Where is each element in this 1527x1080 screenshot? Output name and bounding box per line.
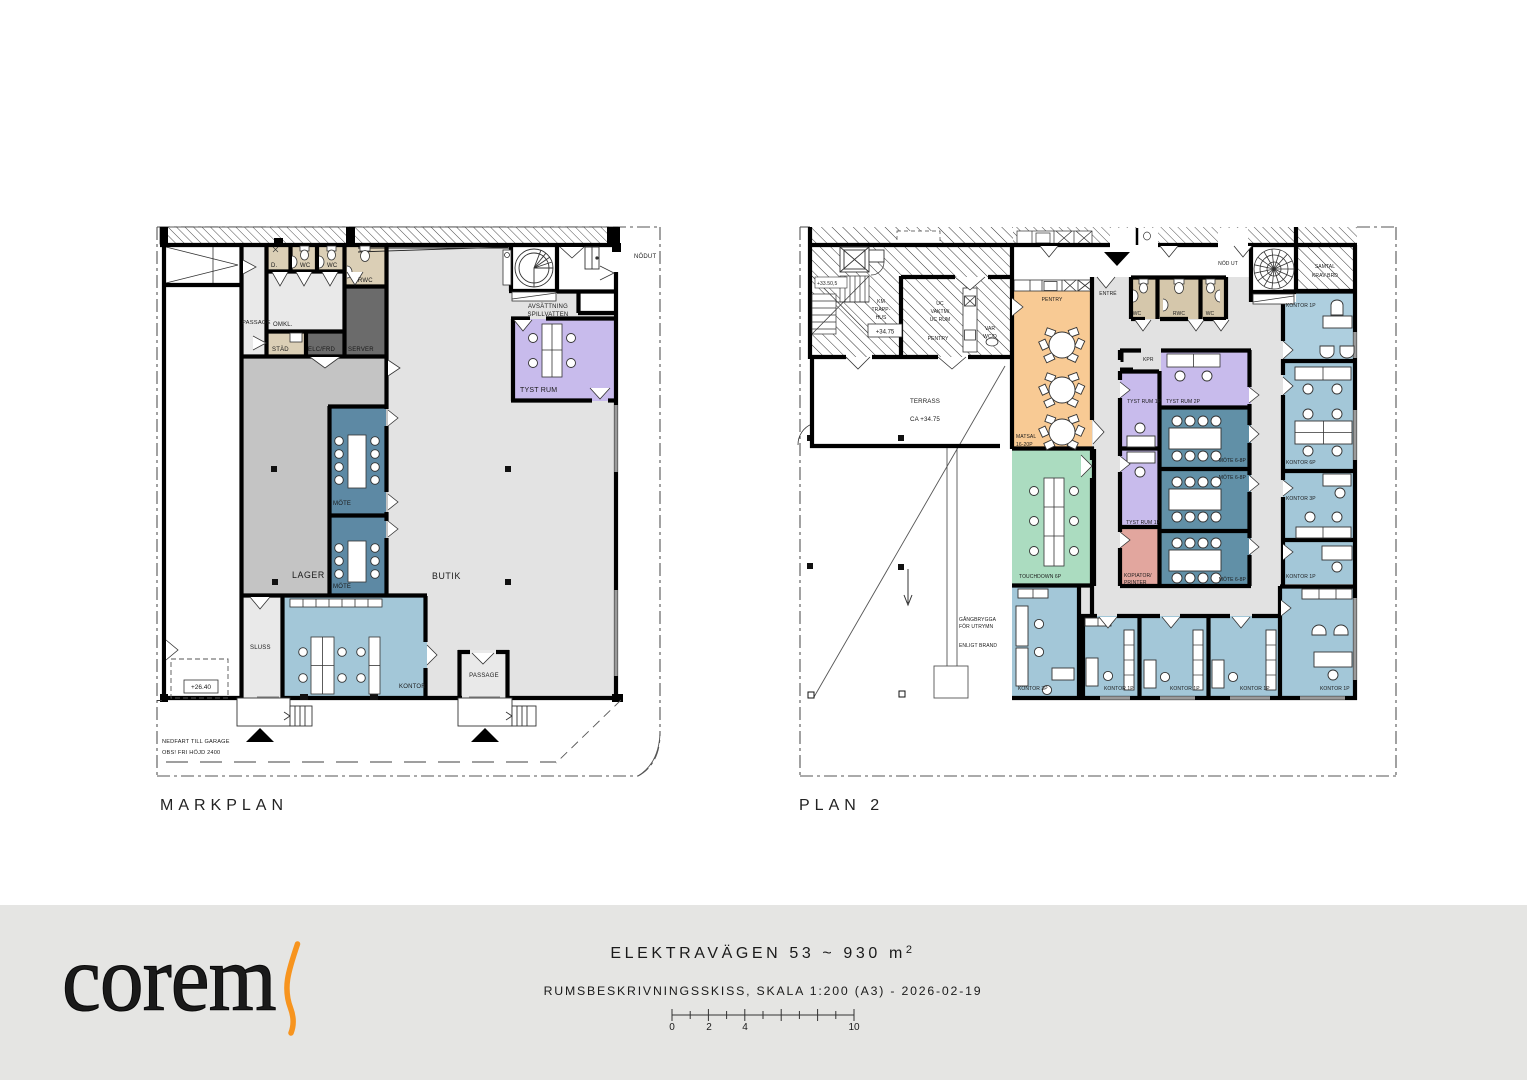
svg-text:KPR: KPR: [1143, 357, 1154, 363]
svg-text:4: 4: [742, 1022, 748, 1033]
svg-text:TOUCHDOWN 6P: TOUCHDOWN 6P: [1019, 574, 1062, 580]
svg-text:RWC: RWC: [358, 278, 373, 284]
svg-text:TYST RUM 1P: TYST RUM 1P: [1127, 399, 1162, 405]
svg-text:BUTIK: BUTIK: [432, 571, 461, 581]
svg-text:TYST RUM: TYST RUM: [520, 387, 557, 394]
svg-text:ENTRÉ: ENTRÉ: [1099, 290, 1117, 297]
svg-text:+33.50,5: +33.50,5: [817, 281, 838, 287]
svg-text:GÅNGBRYGGA: GÅNGBRYGGA: [959, 616, 997, 623]
svg-text:SAMTAL: SAMTAL: [1315, 264, 1335, 270]
svg-text:D.: D.: [271, 263, 278, 269]
svg-text:WC: WC: [327, 263, 338, 269]
svg-text:+34.75: +34.75: [876, 330, 895, 336]
svg-text:KONTOR 6P: KONTOR 6P: [1286, 460, 1316, 466]
svg-text:STÄD: STÄD: [272, 346, 289, 353]
svg-text:TYST RUM 2P: TYST RUM 2P: [1166, 399, 1201, 405]
svg-text:KONTOR: KONTOR: [399, 684, 426, 690]
svg-text:SLUSS: SLUSS: [250, 645, 271, 651]
svg-text:KONTOR 1P: KONTOR 1P: [1240, 686, 1270, 692]
svg-text:KONTOR 3P: KONTOR 3P: [1286, 496, 1316, 502]
svg-text:MARKPLAN: MARKPLAN: [160, 797, 288, 814]
svg-text:WC: WC: [300, 263, 311, 269]
svg-text:ENLIGT BRAND: ENLIGT BRAND: [959, 643, 997, 649]
svg-text:TYST RUM 1P: TYST RUM 1P: [1126, 520, 1161, 526]
svg-text:+26.40: +26.40: [191, 684, 211, 691]
svg-text:RWC: RWC: [1173, 311, 1185, 317]
svg-text:NÖD UT: NÖD UT: [1218, 260, 1238, 267]
svg-text:16-20P: 16-20P: [1016, 442, 1033, 448]
svg-text:KONTOR 1P: KONTOR 1P: [1104, 686, 1134, 692]
svg-text:WC: WC: [1206, 311, 1215, 317]
svg-text:VAR: VAR: [985, 326, 995, 332]
svg-text:PRINTER: PRINTER: [1124, 580, 1147, 586]
svg-text:KONTOR 1P: KONTOR 1P: [1286, 574, 1316, 580]
svg-text:PASSAGE: PASSAGE: [469, 673, 499, 679]
svg-text:OMKL.: OMKL.: [273, 322, 293, 328]
svg-text:KONTOR 1P: KONTOR 1P: [1286, 303, 1316, 309]
svg-text:WC: WC: [1133, 311, 1142, 317]
svg-text:PENTRY: PENTRY: [1042, 297, 1063, 303]
svg-text:2: 2: [706, 1022, 712, 1033]
svg-text:PLAN 2: PLAN 2: [799, 797, 884, 814]
svg-text:SPILLVATTEN: SPILLVATTEN: [528, 312, 569, 318]
svg-text:UC RUM: UC RUM: [930, 317, 951, 323]
svg-text:RUMSBESKRIVNINGSSKISS, SKALA 1: RUMSBESKRIVNINGSSKISS, SKALA 1:200 (A3) …: [544, 984, 983, 998]
svg-text:AVSÄTTNING: AVSÄTTNING: [528, 303, 568, 310]
svg-text:KM: KM: [877, 299, 885, 305]
svg-text:KRAV BRD: KRAV BRD: [1312, 273, 1338, 279]
svg-text:KONTOR 1P: KONTOR 1P: [1320, 686, 1350, 692]
svg-text:TRAPP-: TRAPP-: [872, 307, 891, 313]
svg-text:MATSAL: MATSAL: [1016, 434, 1036, 440]
svg-text:MÖTE 6-8P: MÖTE 6-8P: [1219, 457, 1247, 464]
svg-text:PASSAGE: PASSAGE: [242, 320, 271, 326]
svg-text:ELC/FRD: ELC/FRD: [308, 347, 336, 353]
svg-text:10: 10: [848, 1022, 860, 1033]
svg-text:PENTRY: PENTRY: [928, 336, 949, 342]
svg-text:0: 0: [669, 1022, 675, 1033]
svg-text:KONTOR 3P: KONTOR 3P: [1018, 686, 1048, 692]
svg-text:ELEKTRAVÄGEN 53 ~ 930 m2: ELEKTRAVÄGEN 53 ~ 930 m2: [610, 944, 915, 962]
svg-text:SERVER: SERVER: [348, 347, 374, 353]
svg-text:MÖTE 6-8P: MÖTE 6-8P: [1219, 576, 1247, 583]
svg-text:WC/D: WC/D: [983, 334, 997, 340]
svg-text:VAKTM/: VAKTM/: [931, 309, 950, 315]
svg-text:NÖDUT: NÖDUT: [634, 253, 656, 260]
svg-text:HUS: HUS: [876, 315, 887, 321]
svg-text:TERRASS: TERRASS: [910, 398, 940, 405]
svg-text:MÖTE 6-8P: MÖTE 6-8P: [1219, 474, 1247, 481]
svg-text:NEDFART TILL GARAGE: NEDFART TILL GARAGE: [162, 739, 230, 745]
svg-text:KONTOR 1P: KONTOR 1P: [1170, 686, 1200, 692]
svg-text:MÖTE: MÖTE: [333, 583, 351, 590]
svg-text:KOPIATOR/: KOPIATOR/: [1124, 573, 1152, 579]
svg-text:CA +34.75: CA +34.75: [910, 416, 940, 423]
svg-text:UC: UC: [936, 301, 944, 307]
svg-text:FÖR UTRYMN: FÖR UTRYMN: [959, 623, 994, 630]
svg-text:LAGER: LAGER: [292, 570, 325, 580]
svg-text:MÖTE: MÖTE: [333, 500, 351, 507]
svg-text:OBS! FRI HÖJD 2400: OBS! FRI HÖJD 2400: [162, 749, 220, 756]
svg-text:corem: corem: [62, 926, 276, 1031]
